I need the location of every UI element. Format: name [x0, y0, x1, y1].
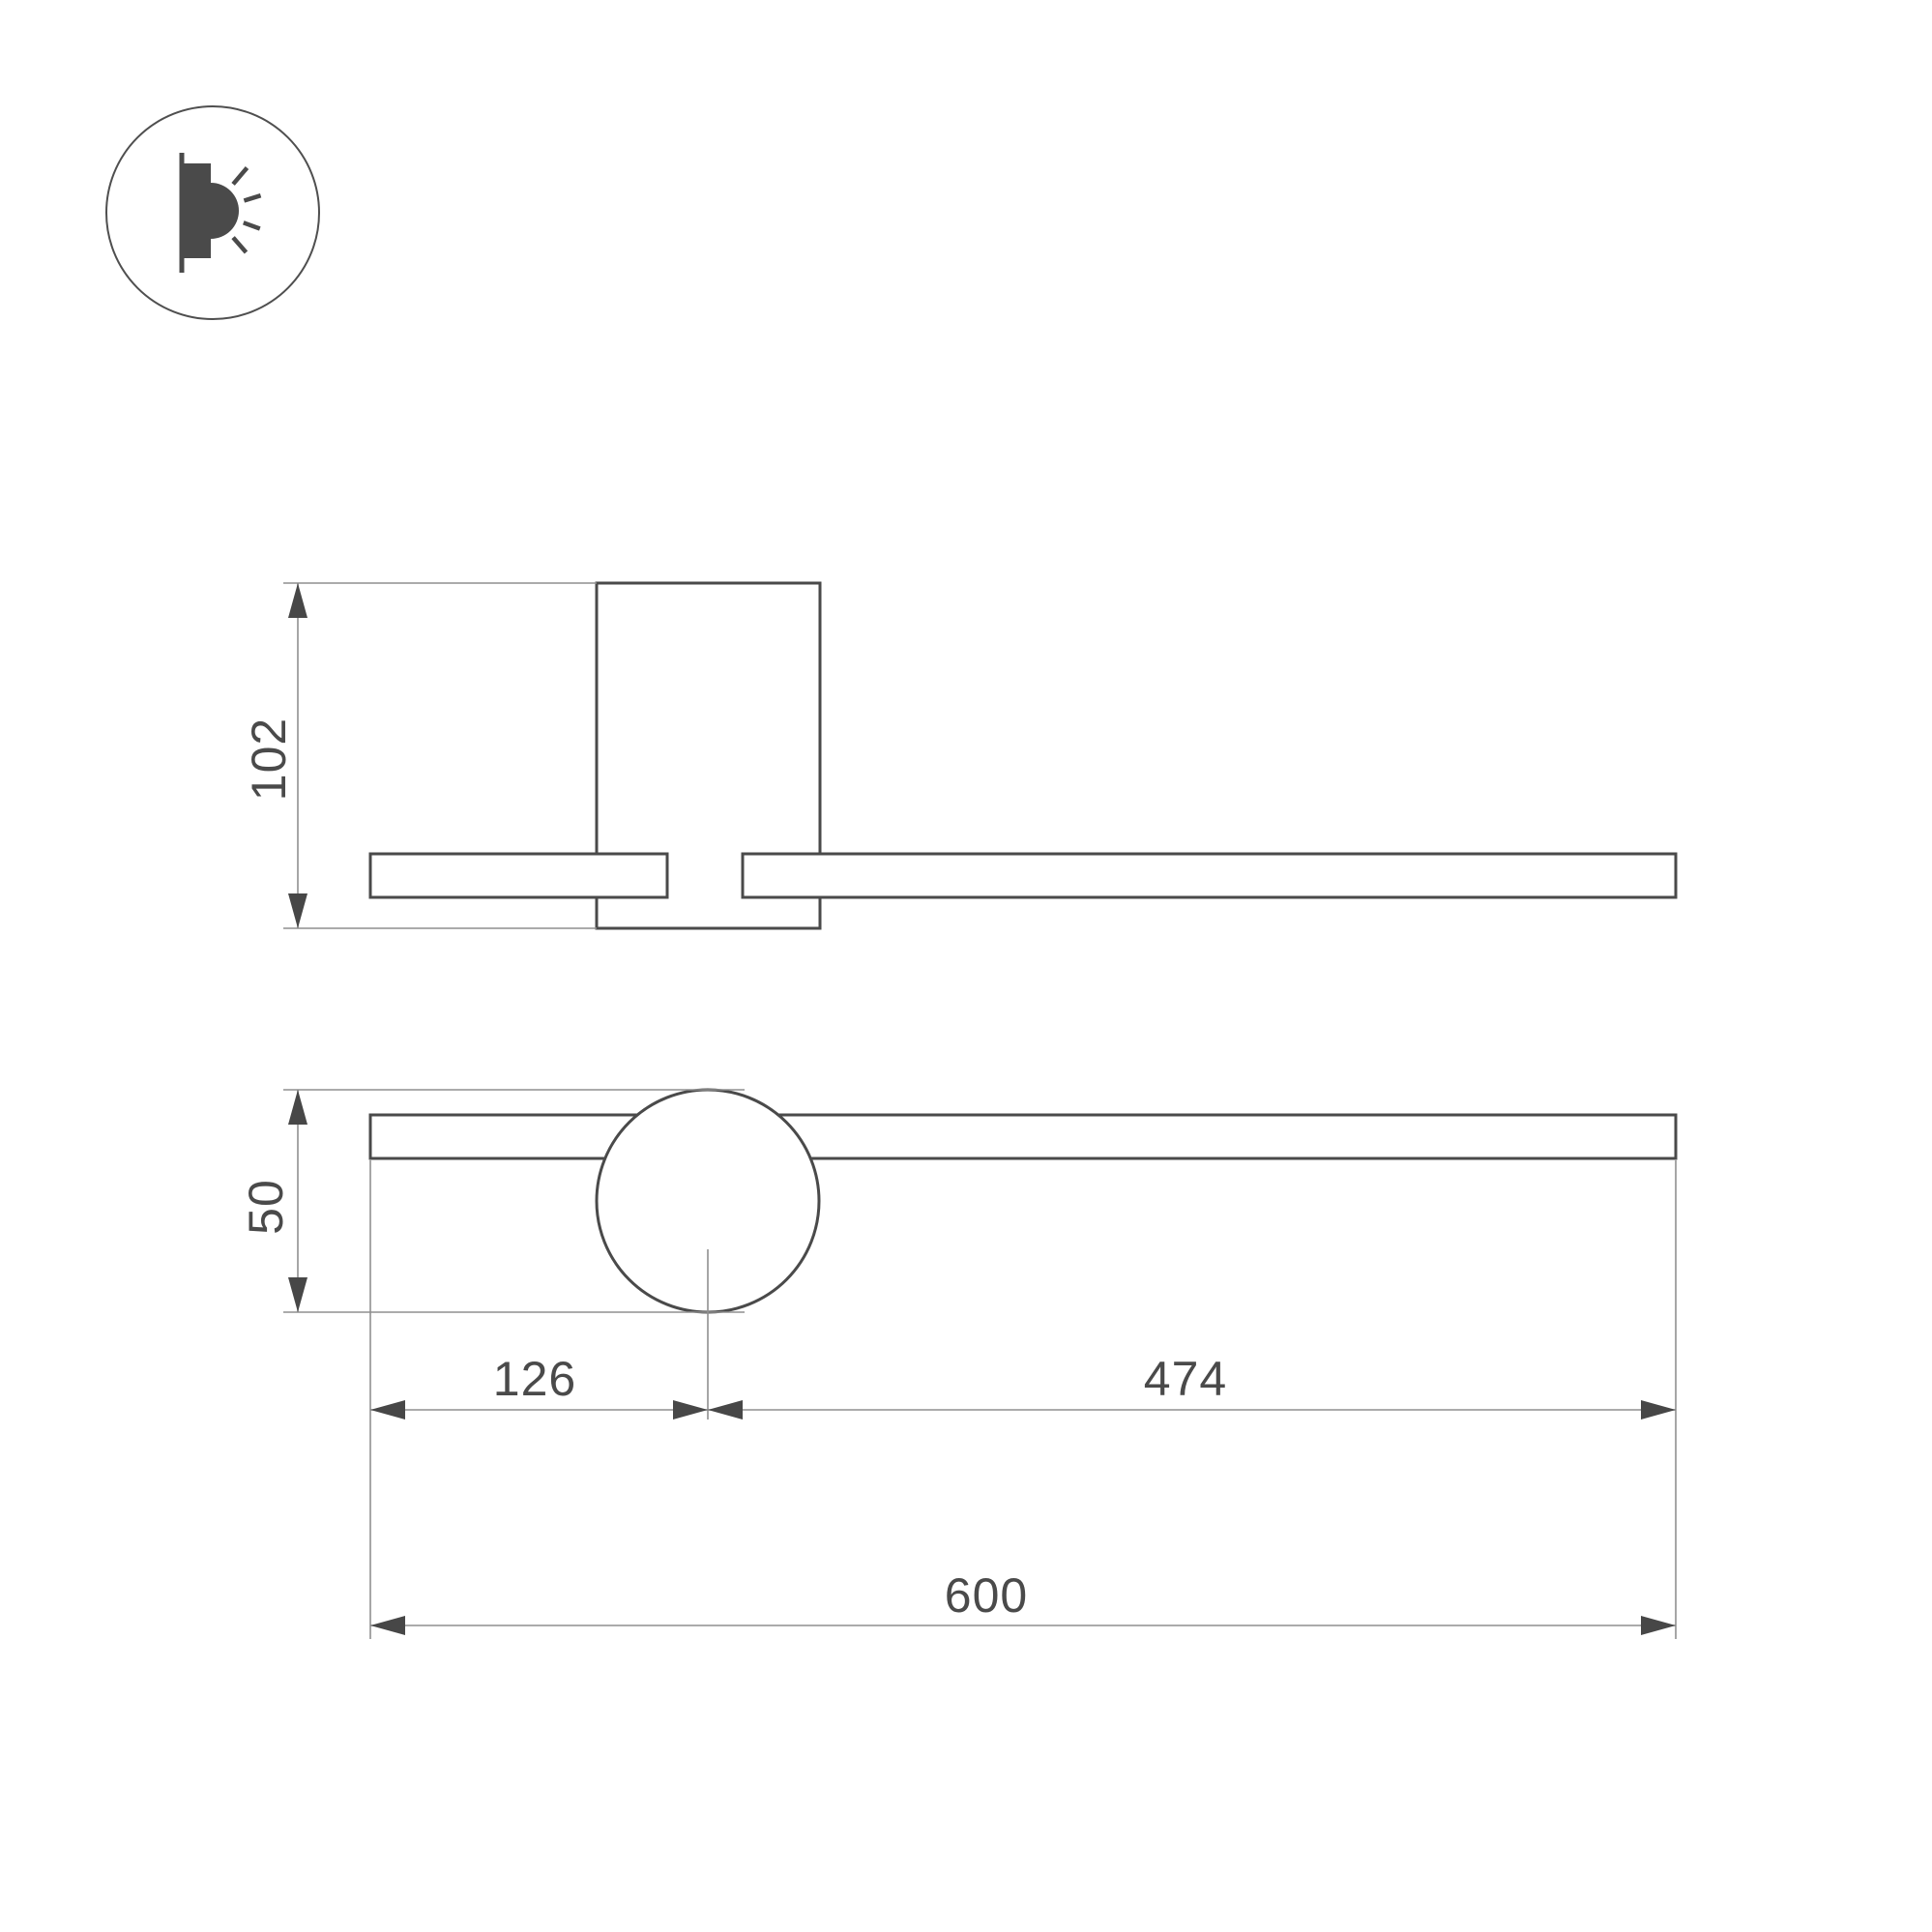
drawing-canvas: 102 50 126 474	[0, 0, 1932, 1932]
wall-light-icon	[106, 106, 319, 319]
dim-474-arrow-right	[1641, 1400, 1676, 1420]
dimension-drawing: 102 50 126 474	[0, 0, 1932, 1932]
side-view-arm-left	[370, 854, 667, 897]
side-view-arm-right	[743, 854, 1676, 897]
dim-600-label: 600	[945, 1568, 1028, 1623]
dim-474-label: 474	[1144, 1352, 1227, 1406]
dim-102-arrow-up	[288, 583, 307, 618]
dim-126-arrow-left	[370, 1400, 405, 1420]
dim-50-arrow-down	[288, 1277, 307, 1312]
side-view: 102	[242, 583, 1676, 928]
dim-600-arrow-left	[370, 1616, 405, 1635]
dim-126-arrow-right	[673, 1400, 708, 1420]
dim-126-label: 126	[493, 1352, 576, 1406]
front-view-arm	[370, 1115, 1676, 1158]
dim-600-arrow-right	[1641, 1616, 1676, 1635]
icon-lamp-body	[184, 163, 211, 258]
dim-50-label: 50	[239, 1179, 293, 1235]
dim-50-arrow-up	[288, 1090, 307, 1125]
dim-474-arrow-left	[708, 1400, 743, 1420]
front-view: 50 126 474 600	[239, 1090, 1676, 1639]
dim-102-label: 102	[242, 717, 296, 801]
dim-102-arrow-down	[288, 893, 307, 928]
